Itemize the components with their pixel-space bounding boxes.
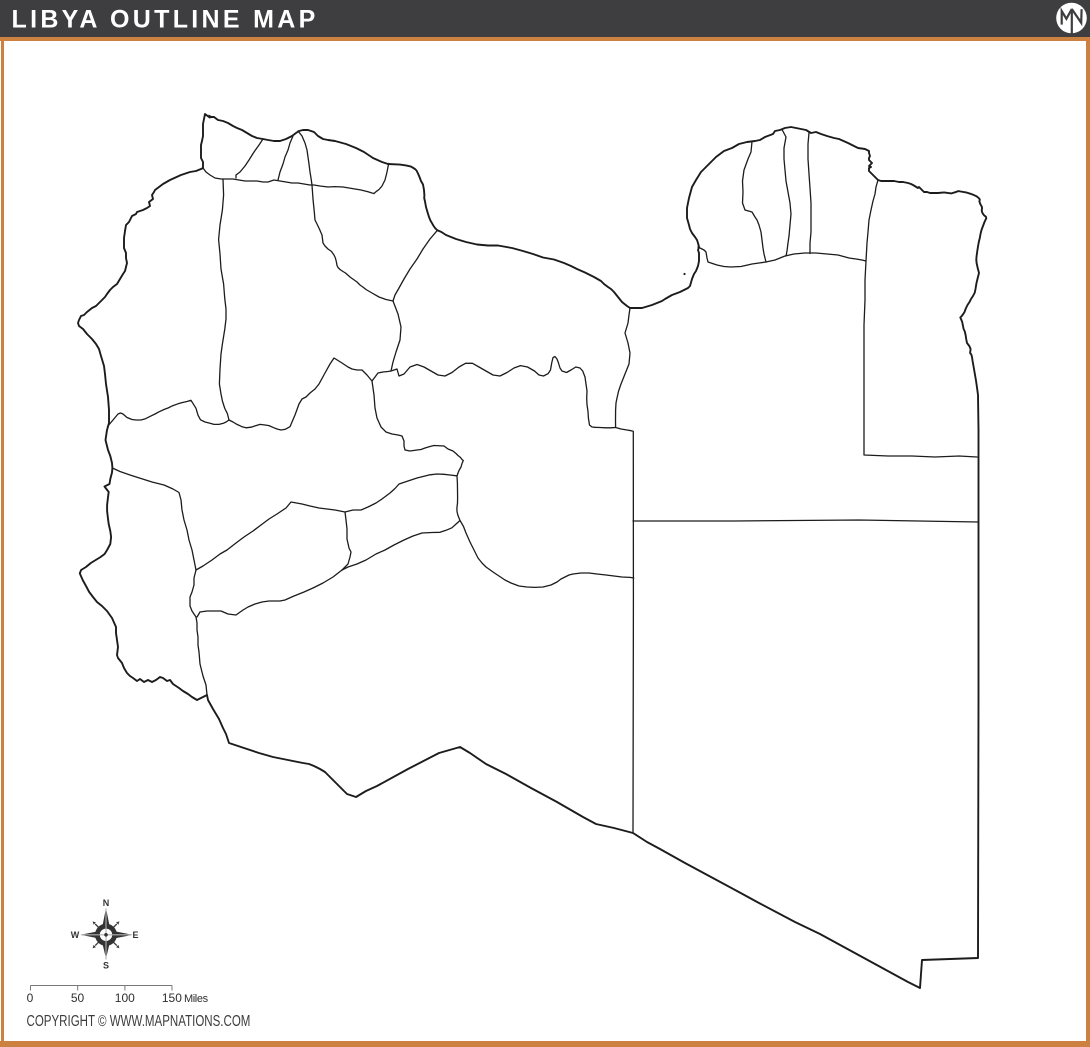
svg-text:Miles: Miles xyxy=(184,993,209,1005)
svg-text:50: 50 xyxy=(71,991,85,1005)
svg-text:150: 150 xyxy=(162,991,182,1005)
svg-text:COPYRIGHT © WWW.MAPNATIONS.COM: COPYRIGHT © WWW.MAPNATIONS.COM xyxy=(27,1012,251,1029)
svg-text:W: W xyxy=(71,930,80,940)
svg-text:S: S xyxy=(103,961,109,971)
svg-text:0: 0 xyxy=(27,991,34,1005)
svg-text:E: E xyxy=(132,930,138,940)
svg-text:LIBYA OUTLINE MAP: LIBYA OUTLINE MAP xyxy=(12,6,319,34)
svg-text:N: N xyxy=(103,898,110,908)
svg-text:100: 100 xyxy=(115,991,135,1005)
